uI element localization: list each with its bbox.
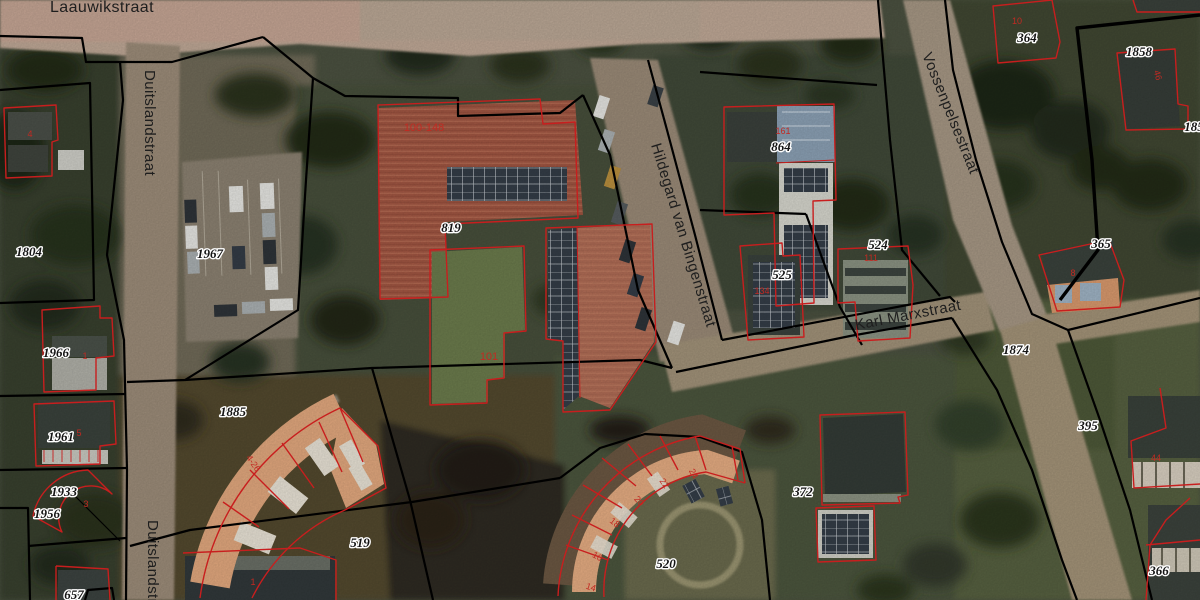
parcel-label-366: 366 [1148,563,1169,578]
house-number-1: 1 [250,577,255,587]
parcel-label-372: 372 [792,484,813,499]
house-number-5: 5 [76,428,81,438]
house-number-161: 161 [775,126,790,136]
parcel-label-365: 365 [1090,236,1111,251]
parcel-label-519: 519 [350,535,370,550]
parcel-label-1804: 1804 [16,244,43,259]
parcel-label-395: 395 [1077,418,1098,433]
parcel-label-520: 520 [656,556,676,571]
parcel-label-364: 364 [1016,30,1037,45]
parcel-label-657: 657 [64,587,84,600]
parcel-label-864: 864 [771,139,791,154]
parcel-label-1858: 1858 [1126,44,1153,59]
house-number-4: 4 [27,129,32,139]
house-number-111: 111 [864,253,878,263]
street-label-duitslandstraat-south: Duitslandstraat [144,520,161,600]
house-number-134: 134 [754,286,769,296]
parcel-label-524: 524 [868,237,888,252]
parcel-label-1967: 1967 [197,246,224,261]
parcel-label-1956: 1956 [34,506,61,521]
parcel-label-1874: 1874 [1003,342,1030,357]
street-label-duitslandstraat: Duitslandstraat [141,70,158,176]
street-label-laauwikstraat: Laauwikstraat [50,0,154,16]
parcel-label-1966: 1966 [43,345,70,360]
parcel-label-525: 525 [772,267,792,282]
house-number-101: 101 [480,351,498,363]
house-number-10: 10 [1012,16,1022,26]
parcel-label-185: 185 [1184,119,1200,134]
photo-grain [0,0,1200,600]
house-number-1b: 1 [82,351,87,361]
parcel-label-1961: 1961 [48,429,74,444]
parcel-label-1885: 1885 [220,404,247,419]
parcel-label-819: 819 [441,220,461,235]
map-canvas[interactable]: Laauwikstraat Duitslandstraat Duitslands… [0,0,1200,600]
house-number-100-148: 100-148 [404,122,444,134]
parcel-label-1933: 1933 [51,484,78,499]
house-number-3: 3 [83,499,88,509]
house-number-8: 8 [1070,268,1075,278]
house-number-44: 44 [1151,453,1161,463]
